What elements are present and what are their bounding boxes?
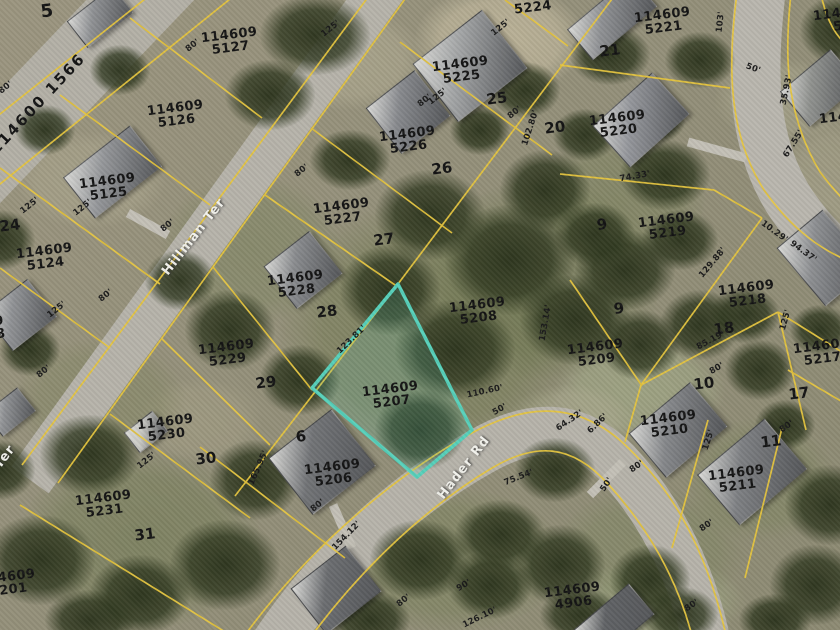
photo-grain	[0, 0, 840, 630]
parcel-map: 5224114609522511460952261146095227114609…	[0, 0, 840, 630]
